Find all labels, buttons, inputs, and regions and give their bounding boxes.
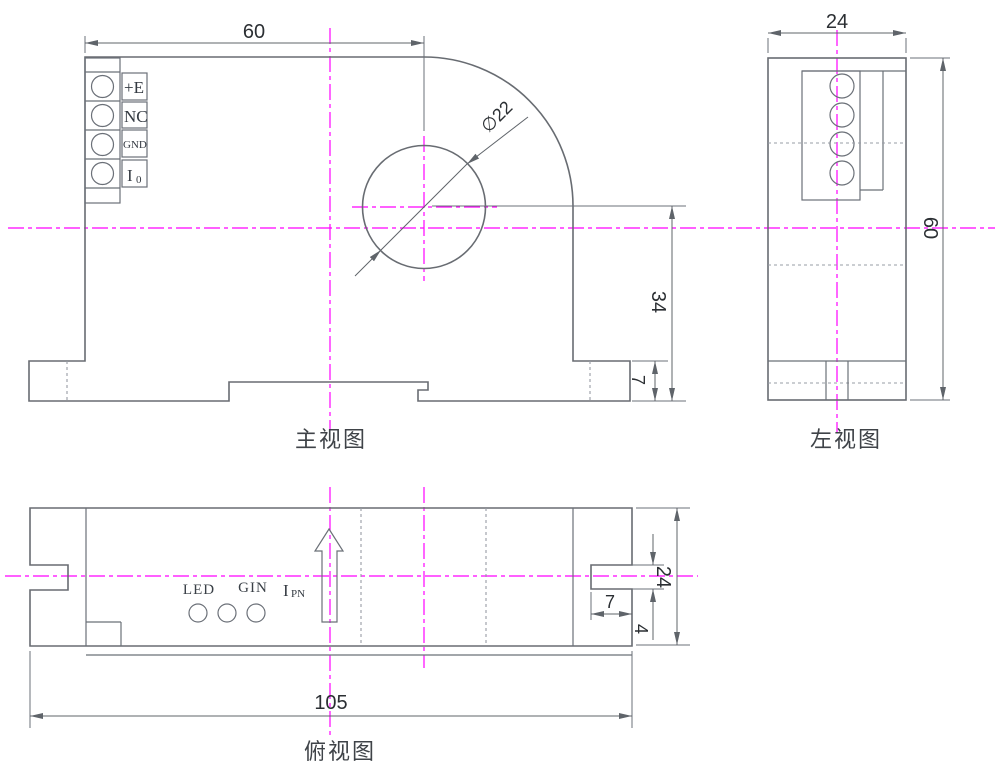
ipn-label-sub: PN bbox=[291, 588, 305, 600]
left-view-screw-4 bbox=[830, 161, 854, 185]
dim-left-height: 60 bbox=[910, 58, 950, 400]
dim-105-text: 105 bbox=[314, 692, 347, 714]
dim-slot-4-text: 4 bbox=[631, 624, 651, 634]
dim-top-24-text: 24 bbox=[652, 566, 674, 588]
dim-slot-depth: 7 bbox=[591, 592, 632, 620]
dim-left-width: 24 bbox=[768, 11, 906, 53]
terminal-label-plus-e: +E bbox=[124, 78, 144, 97]
left-view-screw-2 bbox=[830, 103, 854, 127]
drawing-svg: +E NC GND I 0 ∅22 60 34 bbox=[0, 0, 1000, 778]
dim-center-to-bottom: 34 bbox=[432, 206, 686, 401]
dim-34-text: 34 bbox=[647, 291, 669, 313]
terminal-label-nc: NC bbox=[124, 107, 148, 126]
terminal-label-gnd: GND bbox=[123, 139, 147, 151]
top-view-title: 俯视图 bbox=[304, 739, 376, 764]
led-indicator-1 bbox=[189, 604, 207, 622]
left-view-title: 左视图 bbox=[810, 427, 882, 452]
dim-hole-diameter: ∅22 bbox=[355, 97, 528, 276]
front-view-title: 主视图 bbox=[295, 427, 367, 452]
dim-top-length: 105 bbox=[30, 651, 632, 728]
terminal-screw-3 bbox=[92, 134, 114, 156]
terminal-label-box-4 bbox=[122, 160, 147, 187]
left-view-screw-1 bbox=[830, 74, 854, 98]
terminal-label-i0: I bbox=[127, 166, 133, 185]
terminal-label-i0-sub: 0 bbox=[136, 174, 142, 186]
engineering-drawing-canvas: +E NC GND I 0 ∅22 60 34 bbox=[0, 0, 1000, 778]
dim-left-60-text: 60 bbox=[919, 217, 941, 239]
ipn-label: I bbox=[283, 581, 289, 600]
left-view: 24 60 左视图 bbox=[768, 11, 950, 452]
dim-foot-height: 7 bbox=[628, 361, 668, 401]
dia-arrow-lower bbox=[355, 250, 381, 276]
led-indicator-2 bbox=[218, 604, 236, 622]
terminal-screw-4 bbox=[92, 163, 114, 185]
led-label: LED bbox=[183, 582, 215, 598]
dim-left-24-text: 24 bbox=[826, 11, 848, 33]
terminal-block: +E NC GND I 0 bbox=[85, 58, 148, 203]
dim-front-width-text: 60 bbox=[243, 21, 265, 43]
dim-slot-7-text: 7 bbox=[605, 592, 615, 612]
top-view: LED GIN I PN 24 4 7 bbox=[30, 508, 690, 764]
led-indicator-3 bbox=[247, 604, 265, 622]
left-view-screw-3 bbox=[830, 132, 854, 156]
gin-label: GIN bbox=[238, 580, 268, 596]
dim-foot-7-text: 7 bbox=[628, 375, 648, 385]
terminal-screw-2 bbox=[92, 105, 114, 127]
front-view: +E NC GND I 0 ∅22 60 34 bbox=[29, 21, 686, 452]
terminal-screw-1 bbox=[92, 76, 114, 98]
top-view-outline bbox=[30, 508, 632, 646]
